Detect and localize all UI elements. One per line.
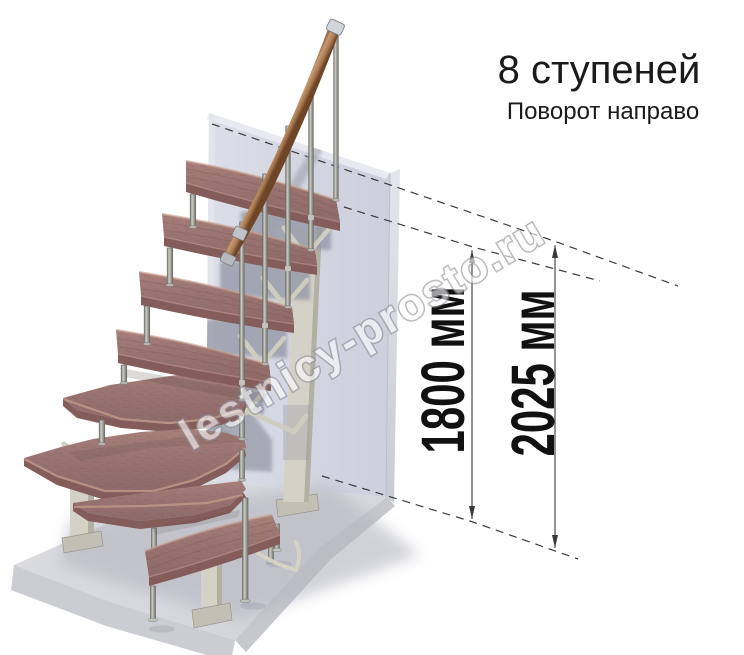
svg-text:Поворот направо: Поворот направо [507, 98, 699, 125]
svg-text:2025 мм: 2025 мм [499, 290, 567, 457]
svg-text:8 ступеней: 8 ступеней [498, 48, 701, 92]
